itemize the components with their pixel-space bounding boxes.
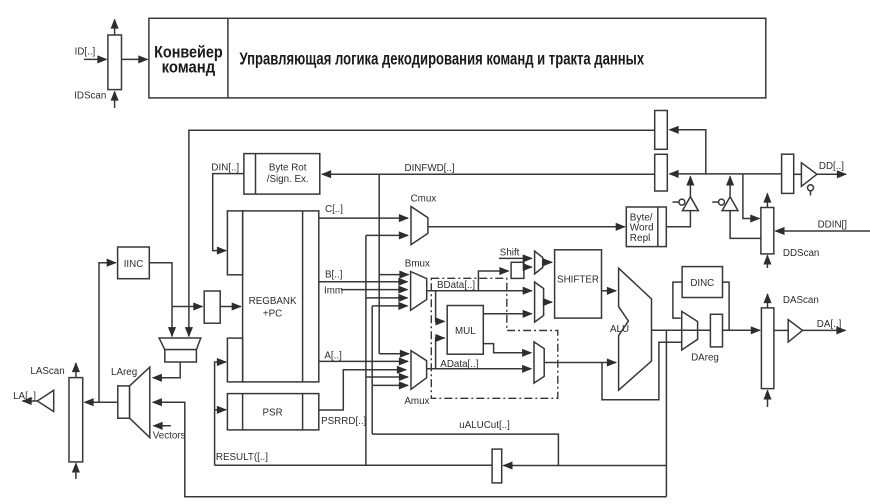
svg-text:DDScan: DDScan: [783, 248, 819, 259]
svg-text:Shift: Shift: [500, 248, 520, 259]
svg-text:A[..]: A[..]: [324, 350, 342, 361]
svg-text:DD[..]: DD[..]: [819, 161, 844, 172]
svg-text:Vectors: Vectors: [153, 431, 186, 442]
svg-text:Imm: Imm: [324, 285, 343, 296]
svg-text:uALUCut[..]: uALUCut[..]: [459, 420, 510, 431]
svg-text:MUL: MUL: [455, 326, 476, 337]
svg-text:Amux: Amux: [404, 396, 429, 407]
svg-text:Byte Rot: Byte Rot: [269, 163, 307, 174]
svg-text:ID[..]: ID[..]: [75, 47, 96, 58]
svg-text:LA[..]: LA[..]: [13, 391, 36, 402]
svg-text:LAreg: LAreg: [111, 367, 137, 378]
svg-text:IDScan: IDScan: [74, 91, 106, 102]
svg-text:DAScan: DAScan: [783, 295, 819, 306]
svg-text:IINC: IINC: [124, 259, 144, 270]
svg-text:B[..]: B[..]: [325, 270, 343, 281]
svg-text:Управляющая логика декодирован: Управляющая логика декодирования команд …: [240, 49, 645, 69]
svg-text:PSRRD[..]: PSRRD[..]: [321, 416, 366, 427]
svg-text:DAreg: DAreg: [691, 353, 719, 364]
svg-text:DINC: DINC: [690, 278, 714, 289]
svg-text:/Sign. Ex.: /Sign. Ex.: [267, 174, 309, 185]
svg-text:SHIFTER: SHIFTER: [557, 275, 599, 286]
svg-text:PSR: PSR: [263, 408, 283, 419]
svg-text:DIN[..]: DIN[..]: [211, 163, 239, 174]
svg-text:REGBANK: REGBANK: [249, 296, 297, 307]
svg-text:LAScan: LAScan: [30, 366, 64, 377]
svg-text:DINFWD[..]: DINFWD[..]: [405, 163, 455, 174]
svg-text:DDIN[]: DDIN[]: [818, 220, 848, 231]
svg-text:+PC: +PC: [263, 308, 282, 319]
svg-text:команд: команд: [162, 59, 216, 77]
svg-text:BData[..]: BData[..]: [437, 280, 475, 291]
svg-text:C[..]: C[..]: [325, 204, 343, 215]
svg-text:DA[..]: DA[..]: [817, 319, 842, 330]
svg-text:RESULT([..]: RESULT([..]: [216, 452, 268, 463]
svg-text:ALU: ALU: [610, 324, 629, 335]
svg-text:Bmux: Bmux: [405, 259, 430, 270]
svg-text:Word: Word: [630, 223, 654, 234]
svg-text:AData[..]: AData[..]: [440, 359, 478, 370]
svg-text:Cmux: Cmux: [411, 194, 437, 205]
svg-text:Repl: Repl: [630, 233, 651, 244]
